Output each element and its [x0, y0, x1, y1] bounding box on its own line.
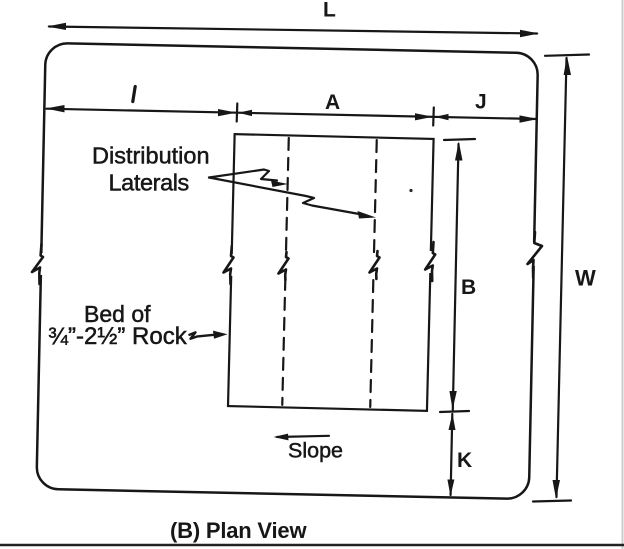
svg-text:W: W	[575, 266, 596, 291]
svg-text:A: A	[325, 91, 340, 114]
svg-text:Laterals: Laterals	[109, 170, 189, 196]
svg-text:K: K	[457, 449, 472, 472]
svg-text:¾”-2½” Rock: ¾”-2½” Rock	[48, 323, 188, 350]
svg-text:Distribution: Distribution	[92, 143, 210, 169]
svg-text:B: B	[461, 276, 476, 299]
svg-text:Slope: Slope	[288, 439, 343, 463]
svg-text:(B) Plan View: (B) Plan View	[170, 518, 307, 543]
svg-text:J: J	[475, 91, 487, 114]
svg-text:L: L	[323, 0, 336, 22]
